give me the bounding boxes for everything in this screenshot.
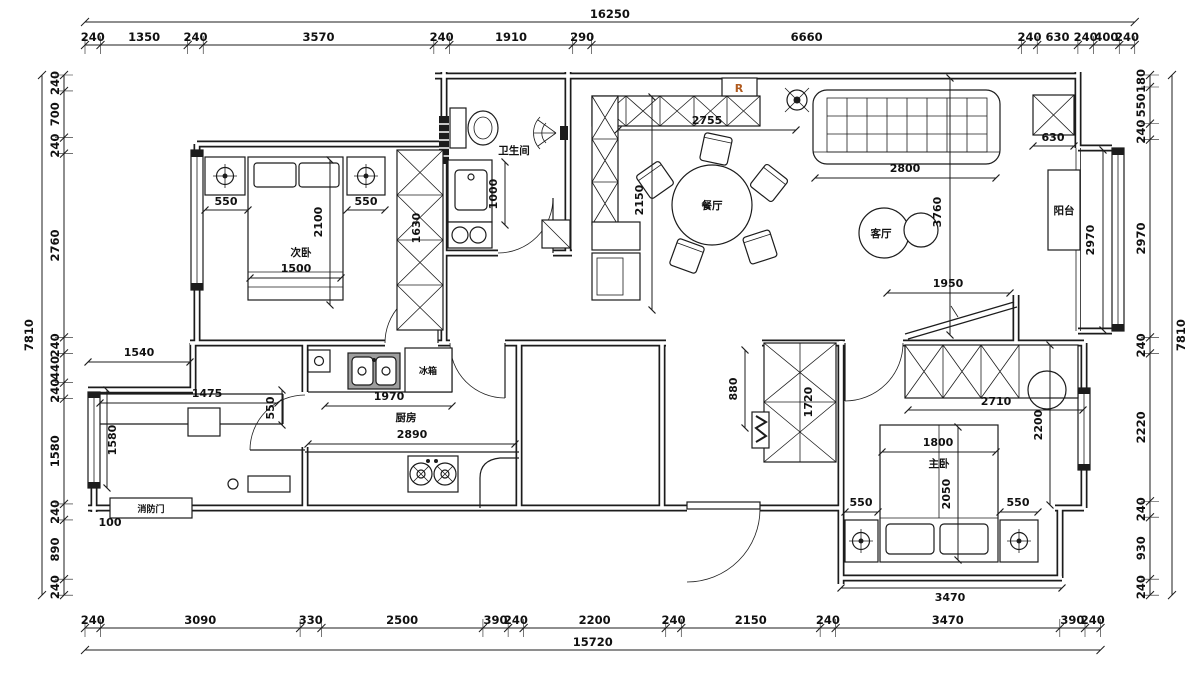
desk: [100, 394, 290, 492]
dim-label: 240: [81, 30, 105, 44]
dim-label: 2050: [940, 478, 953, 509]
bed-bedroom2: [248, 157, 343, 300]
dim-label: 1000: [487, 178, 500, 209]
window-master: [1078, 388, 1090, 470]
dim-label: 240: [1134, 120, 1148, 144]
dim-label: 2220: [1134, 411, 1148, 443]
ceiling-symbol-icon: [785, 88, 809, 112]
vanity-sink: [448, 160, 492, 248]
room-label-bathroom: 卫生间: [498, 144, 530, 157]
dim-total-label: 7810: [1174, 319, 1188, 351]
dim-label: 1540: [124, 346, 155, 359]
dim-label: 240: [48, 379, 62, 403]
ac-unit-icon: [752, 412, 769, 448]
room-label-living: 客厅: [870, 227, 892, 240]
dim-label: 2100: [312, 206, 325, 237]
dim-label: 1970: [374, 390, 405, 403]
dim-label: 1580: [106, 424, 119, 455]
dim-label: 1950: [933, 277, 964, 290]
dim-label: 550: [1007, 496, 1030, 509]
label-riser: R: [735, 82, 744, 95]
dim-label: 550: [264, 396, 277, 419]
dim-label: 2150: [735, 613, 767, 627]
dim-label: 1475: [192, 387, 223, 400]
kitchen-lower-counter: [305, 452, 519, 508]
column-630: [1033, 95, 1074, 135]
dim-label: 240: [430, 30, 454, 44]
dim-label: 1800: [923, 436, 954, 449]
dim-label: 240: [661, 613, 685, 627]
label-fire-door: 消防门: [137, 503, 164, 515]
dim-label: 3570: [303, 30, 335, 44]
dim-label: 880: [727, 377, 740, 400]
dim-label: 630: [1042, 131, 1065, 144]
dim-label: 1720: [802, 386, 815, 417]
dim-label: 550: [850, 496, 873, 509]
dim-label: 240: [183, 30, 207, 44]
dim-label: 180: [1134, 69, 1148, 93]
door-master: [845, 343, 903, 401]
dim-label: 240: [1081, 613, 1105, 627]
window-balcony: [1112, 148, 1124, 331]
dim-label: 2710: [981, 395, 1012, 408]
dim-label: 240: [816, 613, 840, 627]
dim-label: 550: [215, 195, 238, 208]
shower-icon: [534, 117, 568, 149]
dim-label: 550: [1134, 93, 1148, 117]
dim-label: 6660: [791, 30, 823, 44]
dim-label: 240: [48, 333, 62, 357]
dim-label: 550: [355, 195, 378, 208]
dim-label: 240: [1134, 497, 1148, 521]
dim-label: 2760: [48, 229, 62, 261]
dim-label: 240: [48, 134, 62, 158]
dim-label: 2150: [633, 184, 646, 215]
dim-label: 1630: [410, 212, 423, 243]
dim-label: 1350: [128, 30, 160, 44]
dim-label: 3760: [931, 196, 944, 227]
dim-label: 930: [1134, 536, 1148, 560]
corner-cabinet: [480, 458, 519, 508]
door-kitchen: [450, 343, 505, 398]
door-entry: [687, 502, 760, 582]
dim-label: 240: [1115, 30, 1139, 44]
window-study: [88, 392, 100, 488]
window-bedroom2: [191, 150, 203, 290]
dim-label: 240: [81, 613, 105, 627]
dim-label: 630: [1046, 30, 1070, 44]
dim-label: 440: [48, 356, 62, 380]
dim-label: 240: [1134, 575, 1148, 599]
hall-wardrobe: [764, 343, 836, 462]
dim-label: 330: [299, 613, 323, 627]
room-label-balcony: 阳台: [1054, 204, 1075, 217]
floor-plan-canvas: 次卧 卫生间 餐厅 客厅 阳台 厨房 主卧 冰箱 消防门 R 550 550 2…: [0, 0, 1200, 685]
dim-total-label: 16250: [590, 7, 630, 21]
room-label-bedroom2: 次卧: [291, 246, 312, 259]
dim-label: 1910: [495, 30, 527, 44]
dim-label: 3090: [184, 613, 216, 627]
dim-total-label: 7810: [22, 319, 36, 351]
dim-label: 2970: [1134, 222, 1148, 254]
tv-icon: [905, 302, 1017, 339]
dim-label: 3470: [932, 613, 964, 627]
dim-label: 2890: [397, 428, 428, 441]
dim-label: 240: [1017, 30, 1041, 44]
dim-total-label: 15720: [573, 635, 613, 649]
dim-label: 240: [1134, 333, 1148, 357]
dim-label: 2200: [1032, 409, 1045, 440]
dim-label: 240: [48, 500, 62, 524]
room-label-dining: 餐厅: [701, 199, 723, 212]
dim-label: 890: [48, 538, 62, 562]
furniture: [100, 78, 1080, 562]
toilet-icon: [450, 108, 498, 148]
dim-label: 2970: [1084, 224, 1097, 255]
dim-label: 2500: [386, 613, 418, 627]
dim-label: 240: [48, 575, 62, 599]
dim-label: 700: [48, 102, 62, 126]
sofa: [813, 90, 1000, 164]
dim-label: 2755: [692, 114, 723, 127]
floor-plan: 次卧 卫生间 餐厅 客厅 阳台 厨房 主卧 冰箱 消防门 R 550 550 2…: [0, 0, 1200, 685]
room-label-kitchen: 厨房: [396, 411, 417, 424]
room-label-master: 主卧: [929, 457, 950, 470]
dim-label: 2800: [890, 162, 921, 175]
dim-label: 3470: [935, 591, 966, 604]
dim-label: 1580: [48, 435, 62, 467]
dim-label: 2200: [579, 613, 611, 627]
dim-label: 100: [99, 516, 122, 529]
washing-machine: [542, 220, 570, 248]
label-fridge: 冰箱: [419, 365, 437, 377]
dim-label: 1500: [281, 262, 312, 275]
dim-label: 290: [570, 30, 594, 44]
dim-label: 240: [504, 613, 528, 627]
dim-label: 240: [48, 71, 62, 95]
stove-icon: [408, 456, 458, 492]
